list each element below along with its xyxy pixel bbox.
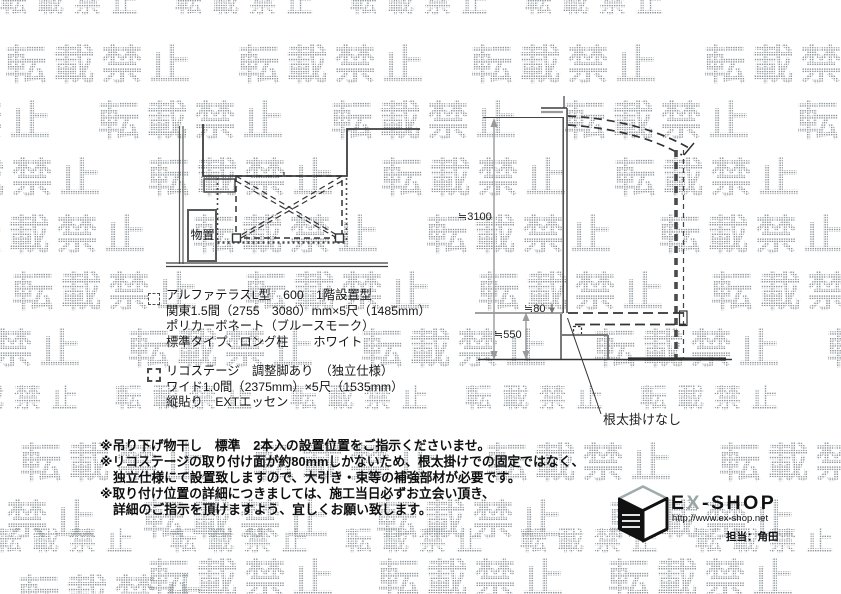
watermark-text: 転載禁止 <box>170 528 318 555</box>
watermark-text: 転載禁止 <box>5 44 197 86</box>
note-line: 独立仕様にて設置致しますので、大引き・束等の補強部材が必要です。 <box>100 470 584 486</box>
brand-letter: E <box>671 492 687 514</box>
watermark-text: 転載禁止 <box>0 157 107 199</box>
watermark-text: 転載禁止 <box>525 0 673 17</box>
legend-line: 縦貼り EXTエッセン <box>166 395 403 411</box>
footer-url: http://www.ex-shop.net <box>672 513 768 524</box>
watermark-text: 転載禁止 <box>426 214 618 256</box>
watermark-text: 転載禁止 <box>0 0 148 17</box>
legend-item-deck: リコステージ 調整脚あり （独立仕様） ワイド1.0間（2375mm）×5尺（1… <box>166 364 403 411</box>
watermark-text: 転載禁止 <box>193 214 385 256</box>
legend-line: ポリカーボネート（ブルースモーク） <box>166 319 431 335</box>
watermark-text: 転載禁止 <box>331 100 523 142</box>
legend-line: リコステージ 調整脚あり （独立仕様） <box>166 364 403 380</box>
notes-block: ※吊り下げ物干し 標準 2本入の設置位置をご指示くださいませ。 ※リコステージの… <box>100 438 584 518</box>
watermark-text: 転載禁止 <box>0 385 88 412</box>
deck-dashed-box-icon <box>147 368 161 382</box>
watermark-text: 転載禁止 <box>0 328 87 370</box>
legend-line: 標準タイプ、ロング柱 ホワイト <box>166 335 431 351</box>
watermark-text: 転載禁止 <box>520 528 668 555</box>
note-line: ※リコステージの取り付け面が約80mmしかないため、根太掛けでの固定ではなく、 <box>100 454 584 470</box>
storage-label: 物置 <box>189 229 216 242</box>
watermark-text: 転載禁止 <box>471 44 663 86</box>
legend-item-terrace: アルファテラスL型 600 1階設置型 関東1.5間（2755 3080）mm×… <box>166 288 431 351</box>
footer-brand: EX-SHOP <box>671 492 776 515</box>
watermark-text: 転載禁止 <box>640 385 788 412</box>
watermark-text: 転載禁止 <box>345 528 493 555</box>
watermark-text: 転載禁止 <box>18 574 210 594</box>
step-height-dim-label: ≒550 <box>494 329 522 341</box>
watermark-text: 転載禁止 <box>175 0 323 17</box>
watermark-text: 転載禁止 <box>381 157 573 199</box>
watermark-text: 転載禁止 <box>594 328 786 370</box>
legend-line: アルファテラスL型 600 1階設置型 <box>166 288 431 304</box>
watermark-text: 転載禁止 <box>827 328 841 370</box>
watermark-text: 転載禁止 <box>659 214 841 256</box>
brand-letter: -SHOP <box>702 492 776 514</box>
watermark-text: 転載禁止 <box>148 157 340 199</box>
legend-line: ワイド1.0間（2375mm）×5尺（1535mm） <box>166 380 403 396</box>
legend-line: 関東1.5間（2755 3080）mm×5尺（1485mm） <box>166 304 431 320</box>
watermark-text: 転載禁止 <box>0 528 143 555</box>
watermark-text: 転載禁止 <box>797 100 841 142</box>
note-line: ※吊り下げ物干し 標準 2本入の設置位置をご指示くださいませ。 <box>100 438 584 454</box>
height-dim-label: ≒3100 <box>458 211 492 223</box>
note-line: ※取り付け位置の詳細につきましては、施工当日必ずお立会い頂き、 <box>100 486 584 502</box>
face-dim-label: ≒80 <box>524 303 545 315</box>
watermark-text: 転載禁止 <box>238 44 430 86</box>
watermark-text: 転載禁止 <box>98 100 290 142</box>
footer-contact: 担当：角田 <box>726 529 779 544</box>
watermark-text: 転載禁止 <box>378 558 570 594</box>
drawing-page: 転載禁止転載禁止転載禁止転載禁止転載禁止転載禁止転載禁止転載禁止転載禁止転載禁止… <box>0 0 841 594</box>
watermark-text: 転載禁止 <box>0 100 57 142</box>
watermark-text: 転載禁止 <box>719 442 841 484</box>
watermark-text: 転載禁止 <box>704 44 841 86</box>
watermark-text: 転載禁止 <box>350 0 498 17</box>
note-line: 詳細のご指示を頂けますよう、宜しくお願い致します。 <box>100 502 584 518</box>
leader-label: 根太掛けなし <box>603 413 681 427</box>
watermark-text: 転載禁止 <box>478 271 670 313</box>
watermark-text: 転載禁止 <box>465 385 613 412</box>
terrace-dashed-box-icon <box>148 293 160 305</box>
watermark-text: 転載禁止 <box>608 558 800 594</box>
brand-letter: X <box>687 492 703 514</box>
watermark-text: 転載禁止 <box>564 100 756 142</box>
watermark-text: 転載禁止 <box>0 214 152 256</box>
watermark-text: 転載禁止 <box>711 271 841 313</box>
watermark-text: 転載禁止 <box>614 157 806 199</box>
